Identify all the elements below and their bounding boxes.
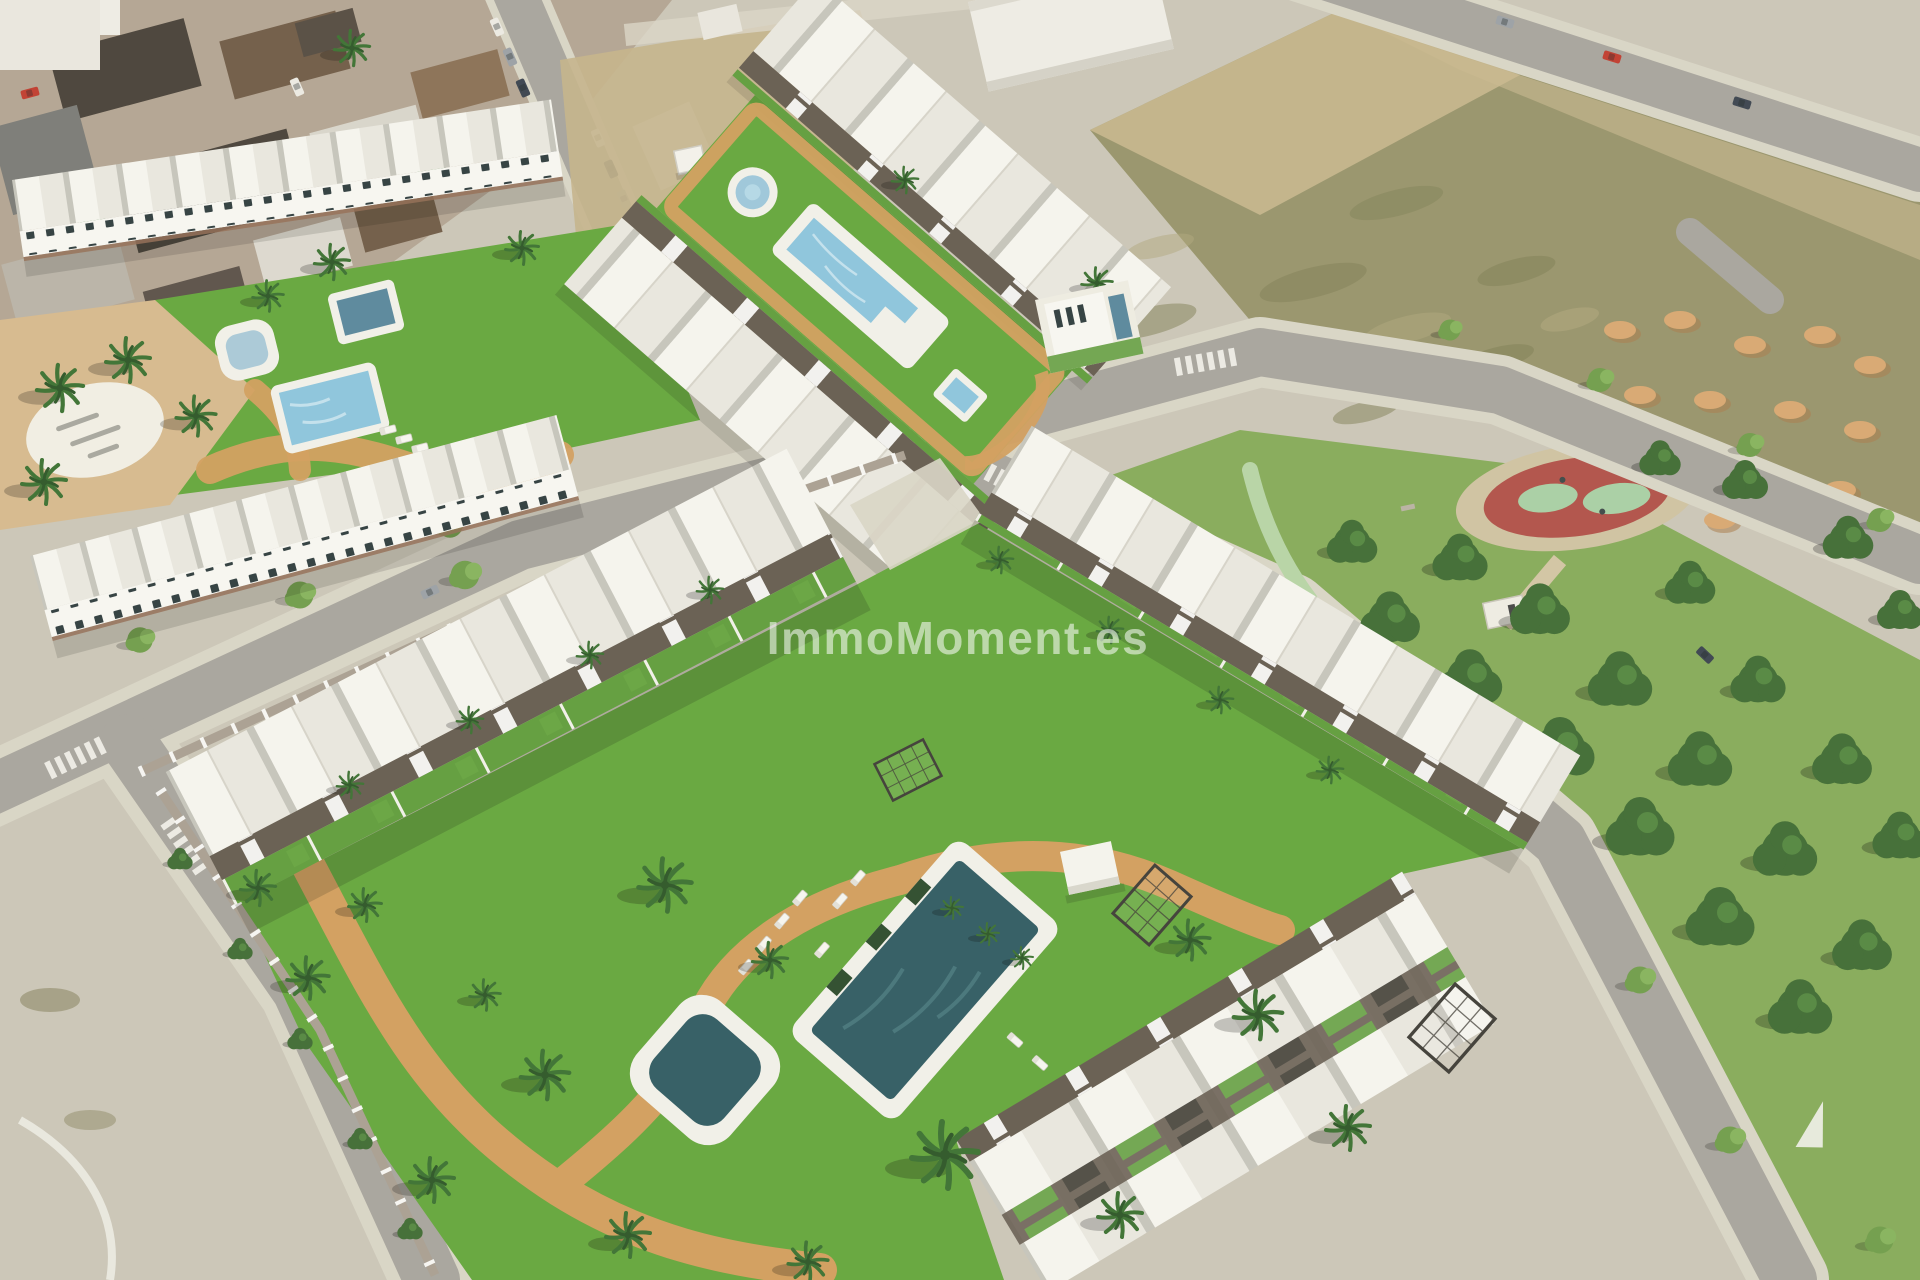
aerial-render-screenshot: ImmoMoment.es bbox=[0, 0, 1920, 1280]
watermark: ImmoMoment.es bbox=[767, 612, 1149, 664]
aerial-render: ImmoMoment.es bbox=[0, 0, 1920, 1280]
